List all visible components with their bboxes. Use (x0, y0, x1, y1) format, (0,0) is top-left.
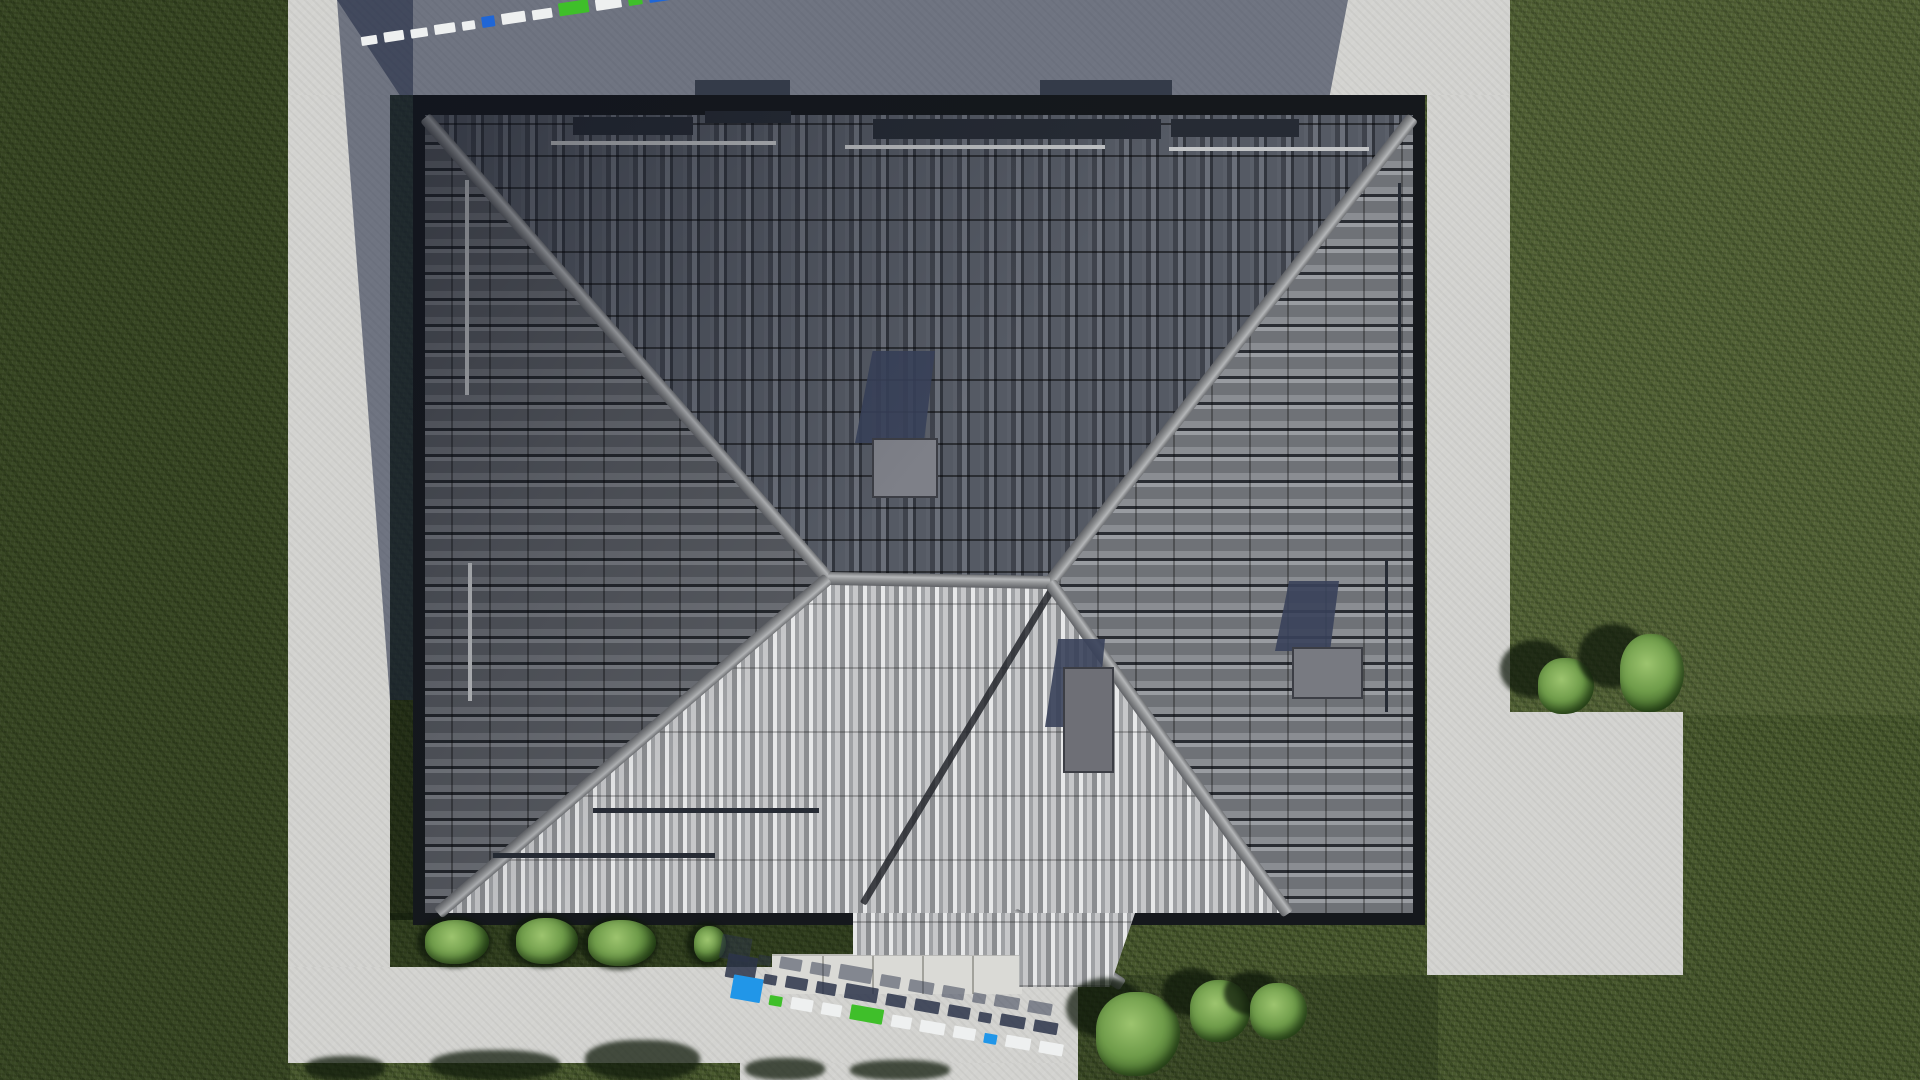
step-joint (822, 956, 824, 994)
tree-shadow (430, 1050, 560, 1080)
eave-strip (1040, 80, 1172, 96)
step-joint (872, 956, 874, 994)
snow-guard-rail (873, 119, 1161, 139)
snow-guard-rail (1169, 147, 1369, 151)
building-shadow (337, 0, 1348, 95)
chimney (1292, 647, 1363, 699)
concrete-path (1427, 95, 1510, 712)
snow-guard-rail (551, 141, 776, 145)
concrete-path (1427, 712, 1683, 975)
grass-tint (0, 0, 290, 1080)
watermark-letter-block (768, 995, 783, 1007)
snow-guard-rail (468, 563, 472, 701)
snow-guard-rail (593, 808, 819, 813)
tree-shadow (305, 1056, 385, 1080)
watermark-3d-text-top_left (362, 46, 363, 47)
snow-guard-rail (1398, 183, 1401, 481)
chimney (872, 438, 938, 498)
tree-shadow (850, 1060, 950, 1080)
watermark-letter-block (481, 15, 495, 28)
snow-guard-rail (493, 853, 715, 858)
tree-shadow (745, 1058, 825, 1080)
snow-guard-rail (465, 180, 469, 395)
eave-strip (695, 80, 790, 96)
snow-guard-rail (573, 117, 693, 135)
snow-guard-rail (1385, 560, 1388, 712)
watermark-3d-text-bottom_center (730, 998, 731, 999)
watermark-letter-block (983, 1033, 998, 1045)
step-joint (972, 956, 974, 994)
snow-guard-rail (845, 145, 1105, 149)
grass-tint (1510, 0, 1920, 715)
tree-shadow (585, 1040, 700, 1080)
watermark-letter-block (730, 974, 764, 1003)
hip-roof (413, 95, 1425, 925)
aerial-house-render: FixPlans.ru (0, 0, 1920, 1080)
watermark-letter-block (462, 20, 476, 31)
step-joint (922, 956, 924, 994)
snow-guard-rail (1171, 119, 1299, 137)
chimney (1063, 667, 1114, 773)
entrance-steps (772, 954, 1022, 994)
snow-guard-rail (705, 111, 791, 123)
